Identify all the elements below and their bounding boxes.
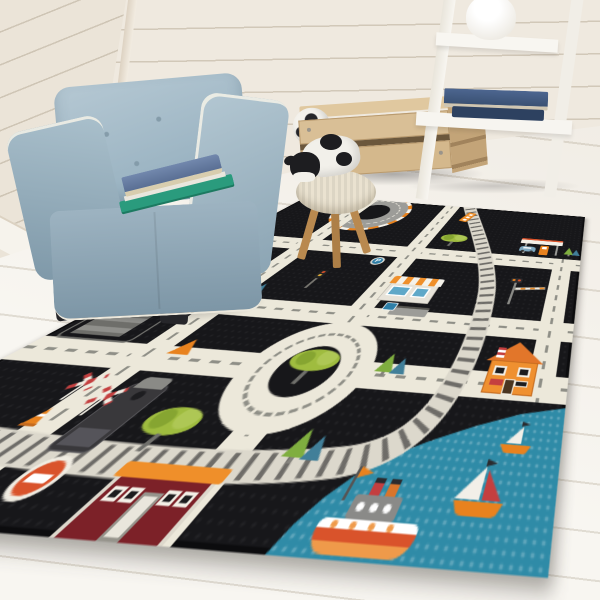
signal-post bbox=[507, 281, 518, 304]
rail-car-window bbox=[465, 216, 470, 218]
house-shutter bbox=[489, 379, 504, 386]
stool-leg bbox=[331, 212, 341, 268]
cow-patch bbox=[320, 134, 342, 150]
blue-pine bbox=[572, 250, 581, 256]
cow-muzzle bbox=[293, 172, 315, 182]
house-window bbox=[492, 365, 507, 375]
boat-cabin bbox=[344, 494, 404, 523]
plush-cow bbox=[290, 130, 370, 190]
pine-trunk bbox=[379, 372, 385, 376]
car-window bbox=[523, 247, 531, 249]
sailboat-small bbox=[498, 425, 534, 455]
pump-screen bbox=[542, 247, 547, 250]
shelf-rail-right bbox=[544, 0, 585, 198]
tree-canopy bbox=[438, 233, 469, 242]
engine-front bbox=[133, 377, 175, 390]
porthole bbox=[329, 520, 340, 529]
porthole bbox=[385, 524, 395, 533]
chair-seam bbox=[153, 212, 160, 309]
gas-post bbox=[554, 245, 558, 256]
tree-trunk bbox=[136, 434, 161, 452]
porthole bbox=[348, 521, 358, 530]
barrier-arm bbox=[515, 287, 546, 290]
white-sail bbox=[506, 426, 525, 444]
porthole bbox=[354, 502, 366, 512]
car-wheel bbox=[529, 250, 533, 252]
porthole bbox=[366, 523, 376, 532]
gas-station bbox=[516, 238, 564, 258]
boat-hull bbox=[301, 517, 420, 562]
gas-pump bbox=[538, 246, 549, 256]
armchair bbox=[22, 78, 276, 318]
signal-head bbox=[510, 278, 523, 283]
pine-trunk bbox=[286, 457, 295, 464]
tree-trunk bbox=[447, 242, 454, 247]
porthole bbox=[368, 503, 380, 513]
sail-hull bbox=[449, 500, 503, 519]
rail-car-window bbox=[462, 219, 467, 221]
cow-patch bbox=[336, 152, 352, 166]
rail-car-window bbox=[469, 214, 474, 216]
stool bbox=[290, 130, 382, 270]
white-vase bbox=[466, 0, 516, 40]
gas-car bbox=[519, 246, 537, 252]
signal-light bbox=[518, 279, 522, 281]
chair-seat bbox=[49, 201, 262, 322]
stool-leg bbox=[349, 206, 371, 254]
ladder-shelf bbox=[406, 0, 600, 200]
signal-light bbox=[512, 279, 516, 281]
porthole bbox=[381, 504, 393, 514]
house-window bbox=[516, 367, 531, 377]
pine-trunk bbox=[567, 255, 569, 257]
stool-leg bbox=[297, 208, 319, 260]
yellow-light bbox=[317, 274, 323, 276]
room-scene: P bbox=[0, 0, 600, 600]
house-shutter bbox=[514, 381, 528, 388]
pine-tree-pair bbox=[563, 246, 583, 257]
no-entry-bar bbox=[22, 473, 54, 484]
